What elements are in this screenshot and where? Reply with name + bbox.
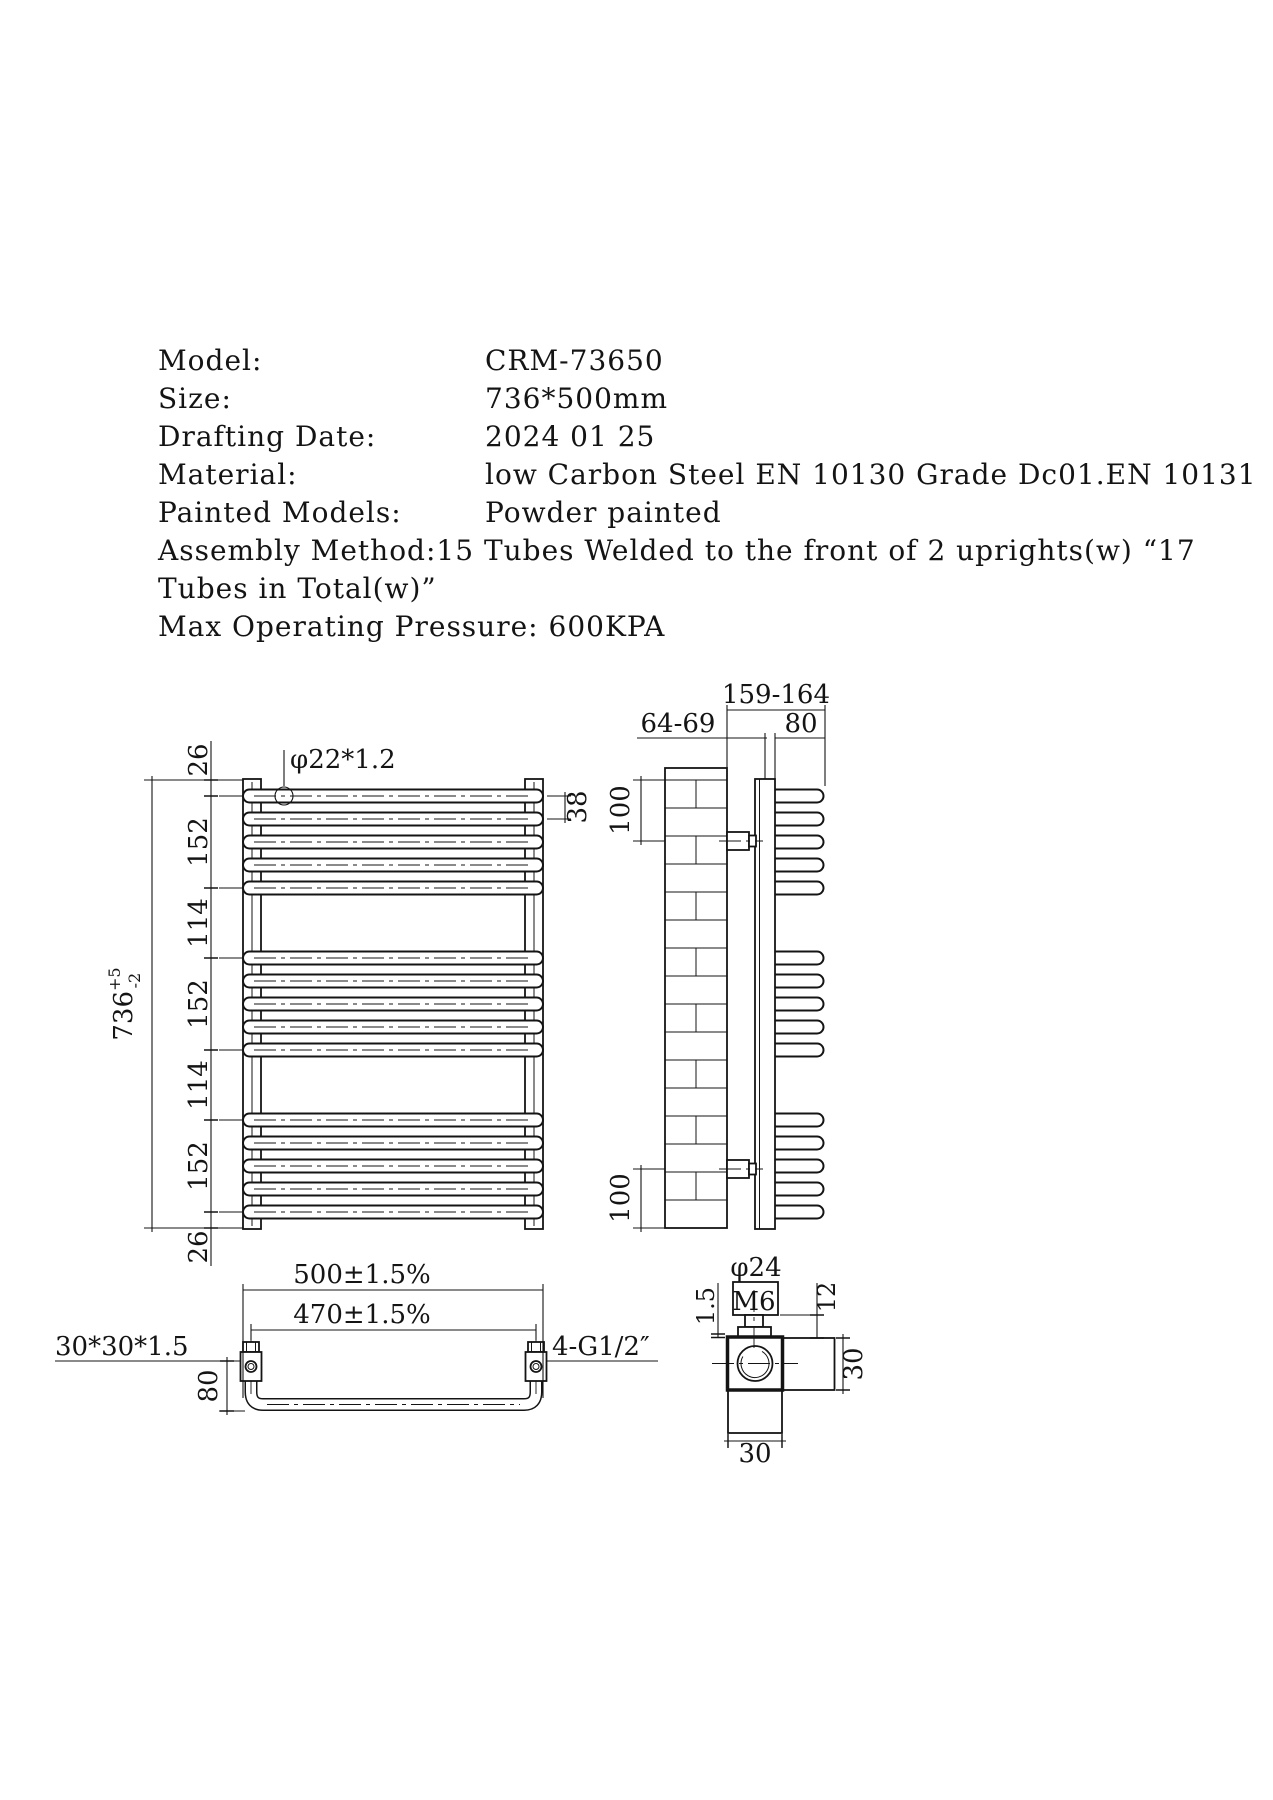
model-value: CRM-73650	[485, 344, 664, 377]
top-bracket-nut	[749, 836, 756, 847]
bottom-bracket-nut	[749, 1164, 756, 1175]
height-tol-minus: -2	[125, 973, 144, 989]
dim-phi24: φ24	[730, 1253, 781, 1283]
left-connection-bracket	[241, 1342, 262, 1381]
dim-30-right: 30	[839, 1347, 869, 1380]
tube-pitch-label: 38	[563, 790, 593, 823]
dim-26-bottom: 26	[184, 1230, 214, 1263]
dim-30-bottom: 30	[738, 1439, 771, 1469]
dim-159-164: 159-164	[722, 680, 830, 710]
drafting-date-value: 2024 01 25	[485, 420, 655, 453]
dim-114-1: 114	[184, 898, 214, 948]
right-connection-port	[531, 1361, 542, 1372]
size-label: Size:	[158, 382, 232, 415]
assembly-method-line1: Assembly Method:15 Tubes Welded to the f…	[157, 534, 1196, 567]
side-upright	[755, 779, 775, 1229]
dim-470: 470±1.5%	[293, 1300, 430, 1330]
technical-drawing-canvas: Model: CRM-73650 Size: 736*500mm Draftin…	[0, 0, 1273, 1800]
assembly-method-line2: Tubes in Total(w)”	[158, 572, 437, 605]
dim-12: 12	[813, 1282, 841, 1313]
overall-height-label: 736+5-2	[105, 967, 144, 1040]
left-connection-port	[246, 1361, 257, 1372]
material-label: Material:	[158, 458, 298, 491]
material-value: low Carbon Steel EN 10130 Grade Dc01.EN …	[485, 458, 1257, 491]
dim-100-top: 100	[606, 785, 636, 835]
height-tol-plus: +5	[105, 967, 124, 991]
dim-26-top: 26	[184, 743, 214, 776]
thread-label: M6	[732, 1287, 775, 1317]
dim-152-2: 152	[184, 979, 214, 1029]
tube-spec-label: φ22*1.2	[290, 745, 396, 775]
dim-152-1: 152	[184, 817, 214, 867]
dim-80-side: 80	[784, 709, 817, 739]
upright-spec-label: 30*30*1.5	[55, 1332, 189, 1362]
dim-1-5: 1.5	[692, 1287, 720, 1325]
painted-models-label: Painted Models:	[158, 496, 402, 529]
connection-spec-label: 4-G1/2″	[552, 1332, 650, 1362]
dim-100-bottom: 100	[606, 1173, 636, 1223]
max-pressure-line: Max Operating Pressure: 600KPA	[158, 610, 665, 643]
drawing-page: Model: CRM-73650 Size: 736*500mm Draftin…	[0, 0, 1273, 1800]
right-bracket-cap	[528, 1342, 544, 1352]
left-bracket-cap	[243, 1342, 259, 1352]
size-value: 736*500mm	[485, 382, 668, 415]
dim-152-3: 152	[184, 1141, 214, 1191]
overall-height-value: 736	[109, 991, 139, 1041]
drafting-date-label: Drafting Date:	[158, 420, 376, 453]
model-label: Model:	[158, 344, 262, 377]
dim-500: 500±1.5%	[293, 1260, 430, 1290]
painted-models-value: Powder painted	[485, 496, 722, 529]
dim-80-bottom: 80	[194, 1369, 224, 1402]
dim-64-69: 64-69	[641, 709, 716, 739]
dim-114-2: 114	[184, 1060, 214, 1110]
